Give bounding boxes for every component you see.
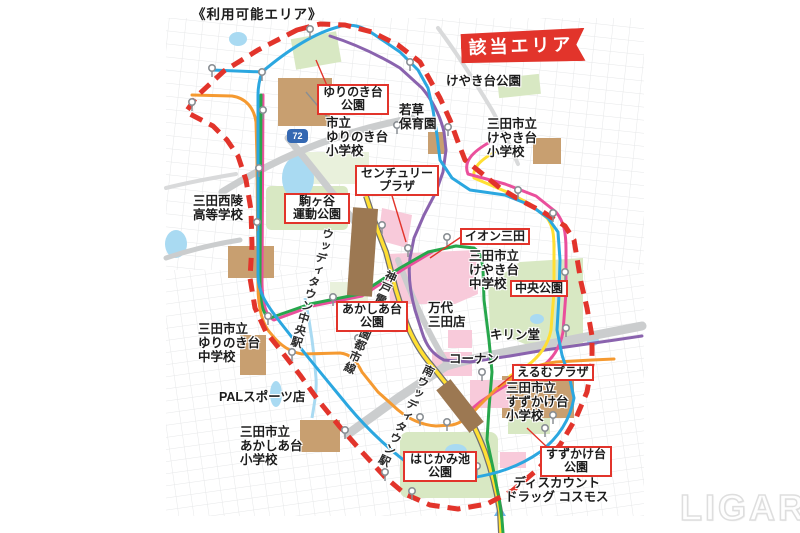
- label-pal-sports-store: PALスポーツ店: [219, 390, 305, 404]
- bus-stop-icon: [445, 124, 451, 130]
- callout-yurinokidai-park: ゆりのき台 公園: [317, 84, 389, 115]
- map-title: 《利用可能エリア》: [192, 3, 323, 23]
- label-sanda-akashiadai-elementary: 三田市立 あかしあ台 小学校: [240, 425, 303, 467]
- target-area-ribbon: 該当エリア: [460, 28, 585, 65]
- bus-stop-icon: [256, 165, 262, 171]
- label-kirindo: キリン堂: [490, 328, 540, 342]
- bus-stop-icon: [382, 469, 388, 475]
- label-kohnan: コーナン: [449, 352, 499, 366]
- bus-stop-icon: [444, 419, 450, 425]
- label-shiritsu-yurinokidai-elementary: 市立 ゆりのき台 小学校: [326, 116, 388, 158]
- callout-chuo-park: 中央公園: [510, 280, 568, 297]
- map-graphic: [0, 0, 800, 533]
- callout-century-plaza: センチュリー プラザ: [355, 165, 439, 196]
- callout-suzukakedai-park: すずかけ台 公園: [540, 446, 612, 477]
- callout-komagatani-sports-park: 駒ヶ谷 運動公園: [284, 193, 350, 224]
- bus-stop-icon: [260, 107, 266, 113]
- bus-stop-icon: [379, 222, 385, 228]
- label-discount-drug-cosmos: ディスカウント ドラッグ コスモス: [505, 476, 608, 504]
- ligare-watermark: LIGARE: [680, 487, 800, 529]
- bus-stop-icon: [189, 99, 195, 105]
- bus-stop-icon: [409, 488, 415, 494]
- label-keyakidai-park: けやき台公園: [446, 74, 521, 88]
- bus-stop-icon: [209, 65, 215, 71]
- route-72-road-shield: 72: [287, 129, 308, 143]
- label-wakakusa-nursery: 若草 保育園: [399, 103, 437, 131]
- bus-stop-icon: [550, 210, 556, 216]
- bus-stop-icon: [542, 425, 548, 431]
- label-mandai-sanda-store: 万代 三田店: [428, 301, 466, 329]
- bus-stop-icon: [407, 59, 413, 65]
- bus-stop-icon: [417, 414, 423, 420]
- bus-stop-icon: [259, 69, 265, 75]
- bus-stop-icon: [342, 427, 348, 433]
- bus-stop-icon: [307, 26, 313, 32]
- label-sanda-suzukakedai-elementary: 三田市立 すずかけ台 小学校: [506, 381, 569, 423]
- callout-aeon-sanda: イオン三田: [460, 228, 530, 245]
- bus-stop-icon: [479, 369, 485, 375]
- bus-stop-icon: [563, 325, 569, 331]
- route-blue-stub: [212, 70, 262, 72]
- bus-stop-icon: [562, 269, 568, 275]
- bus-stop-icon: [265, 313, 271, 319]
- bus-stop-icon: [444, 234, 450, 240]
- label-sanda-seiryo-highschool: 三田西陵 高等学校: [193, 194, 243, 222]
- bus-stop-icon: [405, 245, 411, 251]
- callout-akashiadai-park: あかしあ台 公園: [336, 301, 408, 332]
- callout-hajikami-pond-park: はじかみ池 公園: [403, 451, 477, 482]
- bus-stop-icon: [515, 187, 521, 193]
- label-sanda-keyakidai-elementary: 三田市立 けやき台 小学校: [487, 117, 537, 159]
- map-screenshot: 《利用可能エリア》 該当エリア 72 けやき台公園若草 保育園市立 ゆりのき台 …: [0, 0, 800, 533]
- callout-elm-plaza: えるむプラザ: [512, 364, 594, 381]
- bus-stop-icon: [330, 294, 336, 300]
- label-sanda-yurinokidai-junior-high: 三田市立 ゆりのき台 中学校: [198, 322, 260, 364]
- bus-stop-icon: [289, 349, 295, 355]
- bus-stop-icon: [254, 219, 260, 225]
